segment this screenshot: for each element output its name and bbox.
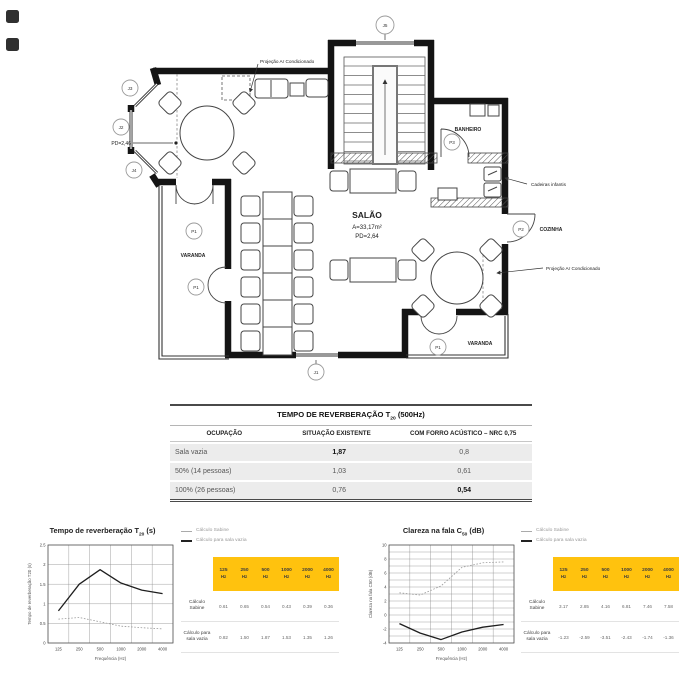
svg-text:2.5: 2.5 bbox=[40, 543, 46, 548]
svg-text:1.5: 1.5 bbox=[40, 582, 46, 587]
tag-p3: P3 bbox=[449, 140, 455, 145]
square-table-top bbox=[330, 169, 416, 193]
svg-text:125: 125 bbox=[396, 647, 404, 652]
acoustic-report-page: J5 J3 J2 J4 P1 P1 P1 J1 P3 P2 Projeção A… bbox=[0, 0, 700, 700]
sabine-line-icon bbox=[521, 531, 532, 532]
freq-col: 1000Hz bbox=[276, 557, 297, 591]
label-bathroom: BANHEIRO bbox=[455, 127, 482, 133]
freq-col: 2000Hz bbox=[637, 557, 658, 591]
svg-text:2000: 2000 bbox=[478, 647, 488, 652]
corner-markers bbox=[6, 10, 19, 51]
sofa-top bbox=[255, 79, 328, 98]
legend-label: Cálculo Sabine bbox=[196, 526, 229, 536]
svg-text:1000: 1000 bbox=[457, 647, 467, 652]
cell-with-ceiling: 0,61 bbox=[396, 468, 532, 475]
cell-existing: 1,87 bbox=[282, 449, 396, 456]
door-p1-veranda-top bbox=[176, 185, 213, 204]
data-row-empty-room: Cálculo para sala vazia -1.23 -2.59 -3.5… bbox=[521, 622, 679, 653]
svg-text:Tempo de reverberação T20 (s): Tempo de reverberação T20 (s) bbox=[27, 563, 32, 625]
summary-header-row: OCUPAÇÃO SITUAÇÃO EXISTENTE COM FORRO AC… bbox=[170, 426, 532, 442]
svg-text:Clareza na fala C50 (dB): Clareza na fala C50 (dB) bbox=[368, 569, 373, 618]
round-table-right bbox=[410, 237, 503, 318]
cell-existing: 1,03 bbox=[282, 468, 396, 475]
reverberation-summary-table: TEMPO DE REVERBERAÇÃO T20 (500Hz) OCUPAÇ… bbox=[170, 404, 532, 502]
freq-header-row: 125Hz 250Hz 500Hz 1000Hz 2000Hz 4000Hz bbox=[521, 557, 679, 591]
floor-plan: J5 J3 J2 J4 P1 P1 P1 J1 P3 P2 Projeção A… bbox=[0, 0, 700, 398]
data-row-sabine: Cálculo Sabine 3.17 2.85 4.16 6.81 7.46 … bbox=[521, 591, 679, 622]
pd-leader-dot bbox=[174, 141, 177, 144]
salon-ceiling: PD=2,64 bbox=[355, 234, 379, 240]
sabine-line-icon bbox=[181, 531, 192, 532]
svg-text:1000: 1000 bbox=[116, 647, 126, 652]
round-table-left bbox=[157, 90, 256, 175]
tag-j4: J4 bbox=[132, 168, 137, 173]
c50-chart-legend: Cálculo Sabine Cálculo para sala vazia bbox=[521, 526, 587, 546]
svg-text:250: 250 bbox=[417, 647, 425, 652]
label-veranda-left: VARANDA bbox=[181, 253, 206, 259]
freq-col: 500Hz bbox=[255, 557, 276, 591]
svg-text:4000: 4000 bbox=[158, 647, 168, 652]
salon-name: SALÃO bbox=[352, 210, 382, 220]
col-with-ceiling: COM FORRO ACÚSTICO – NRC 0,75 bbox=[394, 430, 532, 437]
door-p1-right bbox=[421, 316, 457, 334]
data-row-empty-room: Cálculo para sala vazia 0.82 1.50 1.87 1… bbox=[181, 622, 339, 653]
label-ac-top: Projeção Ar Condicionado bbox=[260, 59, 315, 64]
table-row: 100% (26 pessoas) 0,76 0,54 bbox=[170, 480, 532, 499]
col-occupancy: OCUPAÇÃO bbox=[170, 430, 279, 437]
legend-label: Cálculo para sala vazia bbox=[196, 536, 247, 546]
freq-header-row: 125Hz 250Hz 500Hz 1000Hz 2000Hz 4000Hz bbox=[181, 557, 339, 591]
table-row: Sala vazia 1,87 0,8 bbox=[170, 442, 532, 461]
staircase bbox=[344, 57, 425, 164]
freq-col: 250Hz bbox=[234, 557, 255, 591]
freq-col: 125Hz bbox=[213, 557, 234, 591]
svg-text:0: 0 bbox=[384, 613, 387, 618]
rt-chart-title: Tempo de reverberação T20 (s) bbox=[25, 526, 180, 537]
freq-col: 4000Hz bbox=[658, 557, 679, 591]
svg-text:-4: -4 bbox=[383, 641, 387, 646]
empty-room-line-icon bbox=[521, 540, 532, 542]
svg-text:4000: 4000 bbox=[499, 647, 509, 652]
door-p1-veranda-side bbox=[208, 267, 226, 303]
rt-chart-legend: Cálculo Sabine Cálculo para sala vazia bbox=[181, 526, 247, 546]
cell-occupancy: 50% (14 pessoas) bbox=[170, 468, 282, 475]
svg-text:4: 4 bbox=[384, 585, 387, 590]
svg-text:Frequência (Hz): Frequência (Hz) bbox=[95, 656, 127, 661]
rt-chart: 00.511.522.5125250500100020004000Frequên… bbox=[24, 538, 176, 666]
salon-area: A=33,17m² bbox=[352, 225, 382, 231]
svg-text:2: 2 bbox=[384, 599, 387, 604]
tag-p1c: P1 bbox=[435, 345, 441, 350]
tag-p2: P2 bbox=[518, 227, 524, 232]
bathroom-fixtures bbox=[470, 104, 499, 116]
svg-text:500: 500 bbox=[438, 647, 446, 652]
freq-col: 250Hz bbox=[574, 557, 595, 591]
label-bay-ceiling: PD=2,46 bbox=[111, 141, 131, 147]
legend-label: Cálculo para sala vazia bbox=[536, 536, 587, 546]
label-child-chairs: Cadeiras infantis bbox=[531, 182, 567, 187]
cell-occupancy: Sala vazia bbox=[170, 449, 282, 456]
svg-text:125: 125 bbox=[55, 647, 63, 652]
svg-text:0: 0 bbox=[43, 641, 46, 646]
tag-j1: J1 bbox=[314, 370, 319, 375]
c50-chart-title: Clareza na fala C50 (dB) bbox=[366, 526, 521, 537]
long-table bbox=[241, 192, 313, 355]
svg-text:250: 250 bbox=[76, 647, 84, 652]
square-table-mid bbox=[330, 258, 416, 282]
tag-j3: J3 bbox=[128, 86, 133, 91]
tag-j5: J5 bbox=[383, 23, 388, 28]
table-row: 50% (14 pessoas) 1,03 0,61 bbox=[170, 461, 532, 480]
svg-text:2: 2 bbox=[43, 562, 46, 567]
cell-with-ceiling: 0,54 bbox=[396, 487, 532, 494]
freq-col: 2000Hz bbox=[297, 557, 318, 591]
summary-title: TEMPO DE REVERBERAÇÃO T20 (500Hz) bbox=[170, 406, 532, 426]
data-row-sabine: Cálculo Sabine 0.61 0.65 0.54 0.43 0.39 … bbox=[181, 591, 339, 622]
rt-data-table: 125Hz 250Hz 500Hz 1000Hz 2000Hz 4000Hz C… bbox=[181, 557, 339, 653]
label-ac-right: Projeção Ar Condicionado bbox=[546, 266, 601, 271]
c50-chart: -4-20246810125250500100020004000Frequênc… bbox=[365, 538, 517, 666]
counter-box bbox=[438, 188, 457, 200]
cell-with-ceiling: 0,8 bbox=[396, 449, 532, 456]
svg-text:0.5: 0.5 bbox=[40, 621, 46, 626]
label-veranda-right: VARANDA bbox=[468, 341, 493, 347]
svg-text:-2: -2 bbox=[383, 627, 387, 632]
empty-room-line-icon bbox=[181, 540, 192, 542]
svg-text:6: 6 bbox=[384, 571, 387, 576]
col-existing: SITUAÇÃO EXISTENTE bbox=[279, 430, 395, 437]
freq-col: 1000Hz bbox=[616, 557, 637, 591]
svg-text:10: 10 bbox=[382, 543, 387, 548]
bay-windows bbox=[131, 84, 157, 173]
freq-col: 125Hz bbox=[553, 557, 574, 591]
cell-existing: 0,76 bbox=[282, 487, 396, 494]
child-chairs bbox=[484, 167, 501, 197]
svg-text:500: 500 bbox=[97, 647, 105, 652]
c50-data-table: 125Hz 250Hz 500Hz 1000Hz 2000Hz 4000Hz C… bbox=[521, 557, 679, 653]
freq-col: 4000Hz bbox=[318, 557, 339, 591]
cell-occupancy: 100% (26 pessoas) bbox=[170, 487, 282, 494]
tag-j2: J2 bbox=[119, 125, 124, 130]
tag-p1a: P1 bbox=[191, 229, 197, 234]
svg-text:Frequência (Hz): Frequência (Hz) bbox=[436, 656, 468, 661]
svg-text:2000: 2000 bbox=[137, 647, 147, 652]
label-kitchen: COZINHA bbox=[540, 227, 563, 233]
legend-label: Cálculo Sabine bbox=[536, 526, 569, 536]
tag-p1b: P1 bbox=[193, 285, 199, 290]
svg-text:1: 1 bbox=[43, 601, 46, 606]
freq-col: 500Hz bbox=[595, 557, 616, 591]
svg-text:8: 8 bbox=[384, 557, 387, 562]
